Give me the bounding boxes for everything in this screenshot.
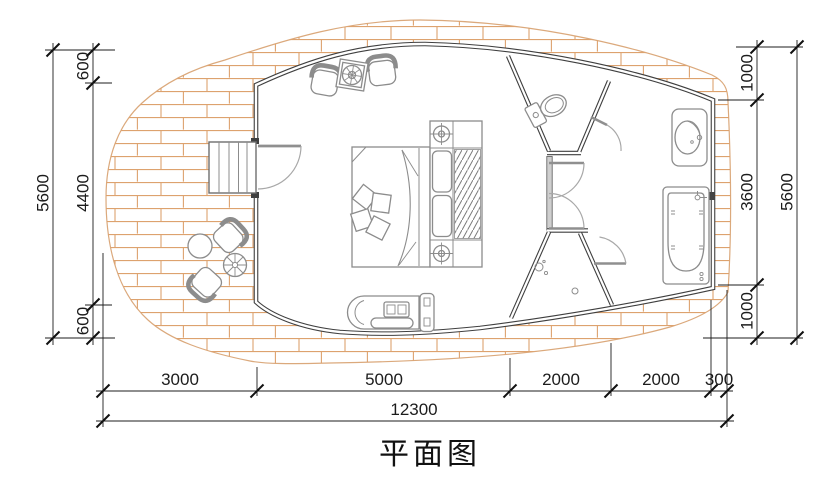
planter-symbol: [188, 234, 212, 258]
dim-label: 2000: [542, 370, 580, 389]
floor-plan-drawing: 5600 600 4400 600 1000 3600 1000 5600: [0, 0, 837, 496]
dim-label: 2000: [642, 370, 680, 389]
dim-label: 600: [73, 307, 92, 335]
dim-label: 5000: [365, 370, 403, 389]
bed-symbol: [351, 147, 430, 267]
side-table-symbol: [336, 59, 368, 91]
round-table-symbol: [224, 254, 247, 277]
wardrobe-symbol: [430, 121, 482, 267]
dim-label: 4400: [73, 174, 92, 212]
dim-label: 5600: [33, 174, 52, 212]
dim-label: 600: [73, 52, 92, 80]
bathtub-symbol: [663, 187, 709, 284]
sink-symbol: [672, 109, 707, 166]
dim-label: 5600: [777, 173, 796, 211]
floor-plan-canvas: 5600 600 4400 600 1000 3600 1000 5600: [0, 0, 837, 496]
dim-label: 3600: [737, 173, 756, 211]
stairs-symbol: [209, 142, 256, 193]
dim-label: 3000: [161, 370, 199, 389]
dim-label: 1000: [737, 292, 756, 330]
dim-label: 1000: [737, 54, 756, 92]
dim-label: 300: [705, 370, 733, 389]
dim-label: 12300: [390, 400, 437, 419]
bench-symbol: [348, 294, 435, 332]
drawing-title: 平面图: [379, 438, 481, 471]
